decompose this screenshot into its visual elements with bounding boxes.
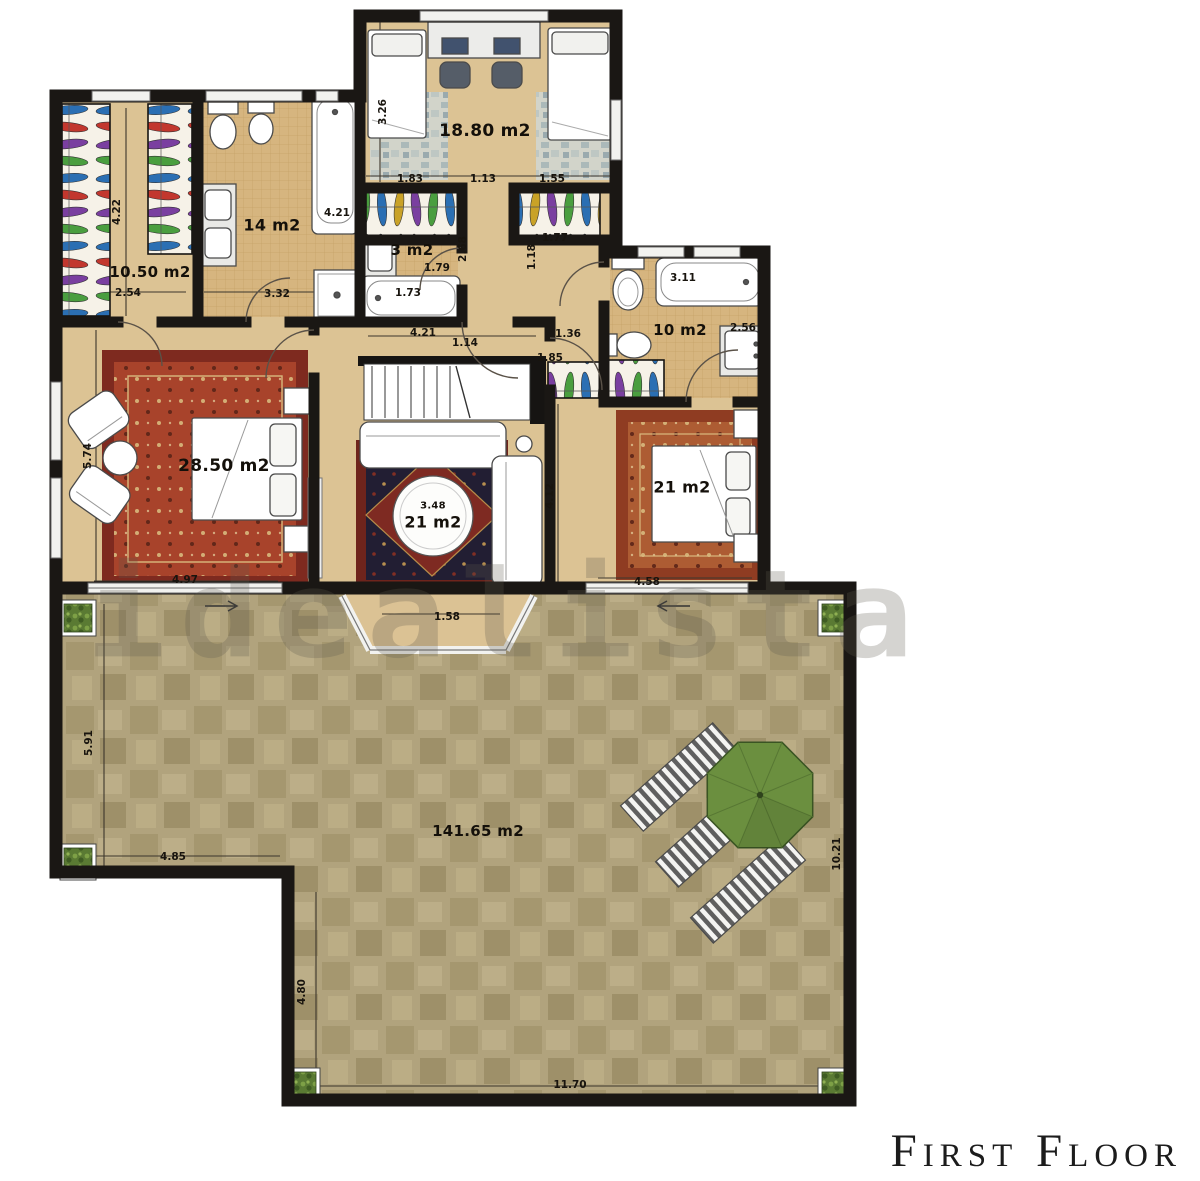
single-bed — [548, 28, 612, 140]
nightstand — [734, 410, 760, 438]
wardrobe — [62, 104, 110, 316]
double-sink — [200, 184, 236, 266]
double-bed — [652, 446, 756, 542]
nightstand — [284, 526, 310, 552]
toilet — [612, 258, 644, 310]
bathtub — [656, 258, 764, 306]
floor-plan-drawing — [0, 0, 1200, 1181]
wardrobe — [366, 190, 458, 236]
sofa — [360, 422, 506, 468]
planter — [60, 600, 96, 636]
bidet — [606, 332, 651, 358]
round-dining-table — [393, 476, 473, 556]
nightstand — [284, 388, 310, 414]
round-side-table — [516, 436, 532, 452]
sofa — [492, 456, 542, 586]
desk-chair — [492, 62, 522, 88]
nightstand — [734, 534, 760, 562]
shower — [314, 270, 360, 320]
bathtub — [362, 276, 460, 320]
bathtub — [312, 94, 358, 234]
wardrobe — [518, 190, 600, 236]
desk — [428, 22, 540, 58]
double-bed — [192, 418, 302, 520]
wardrobe — [548, 362, 600, 398]
round-side-table — [103, 441, 137, 475]
terrace-floor — [50, 588, 856, 1106]
wardrobe — [148, 104, 192, 254]
staircase — [358, 356, 546, 424]
parasol — [707, 742, 812, 847]
floor-plan: idealista 18.80 m2 10.50 m2 14 m2 3 m2 1… — [0, 0, 1200, 1181]
single-bed — [368, 30, 426, 138]
bidet — [248, 102, 274, 144]
toilet — [208, 102, 238, 149]
page-title: First Floor — [891, 1124, 1182, 1178]
wardrobe — [608, 360, 664, 398]
bay-floor — [344, 594, 534, 650]
desk-chair — [440, 62, 470, 88]
